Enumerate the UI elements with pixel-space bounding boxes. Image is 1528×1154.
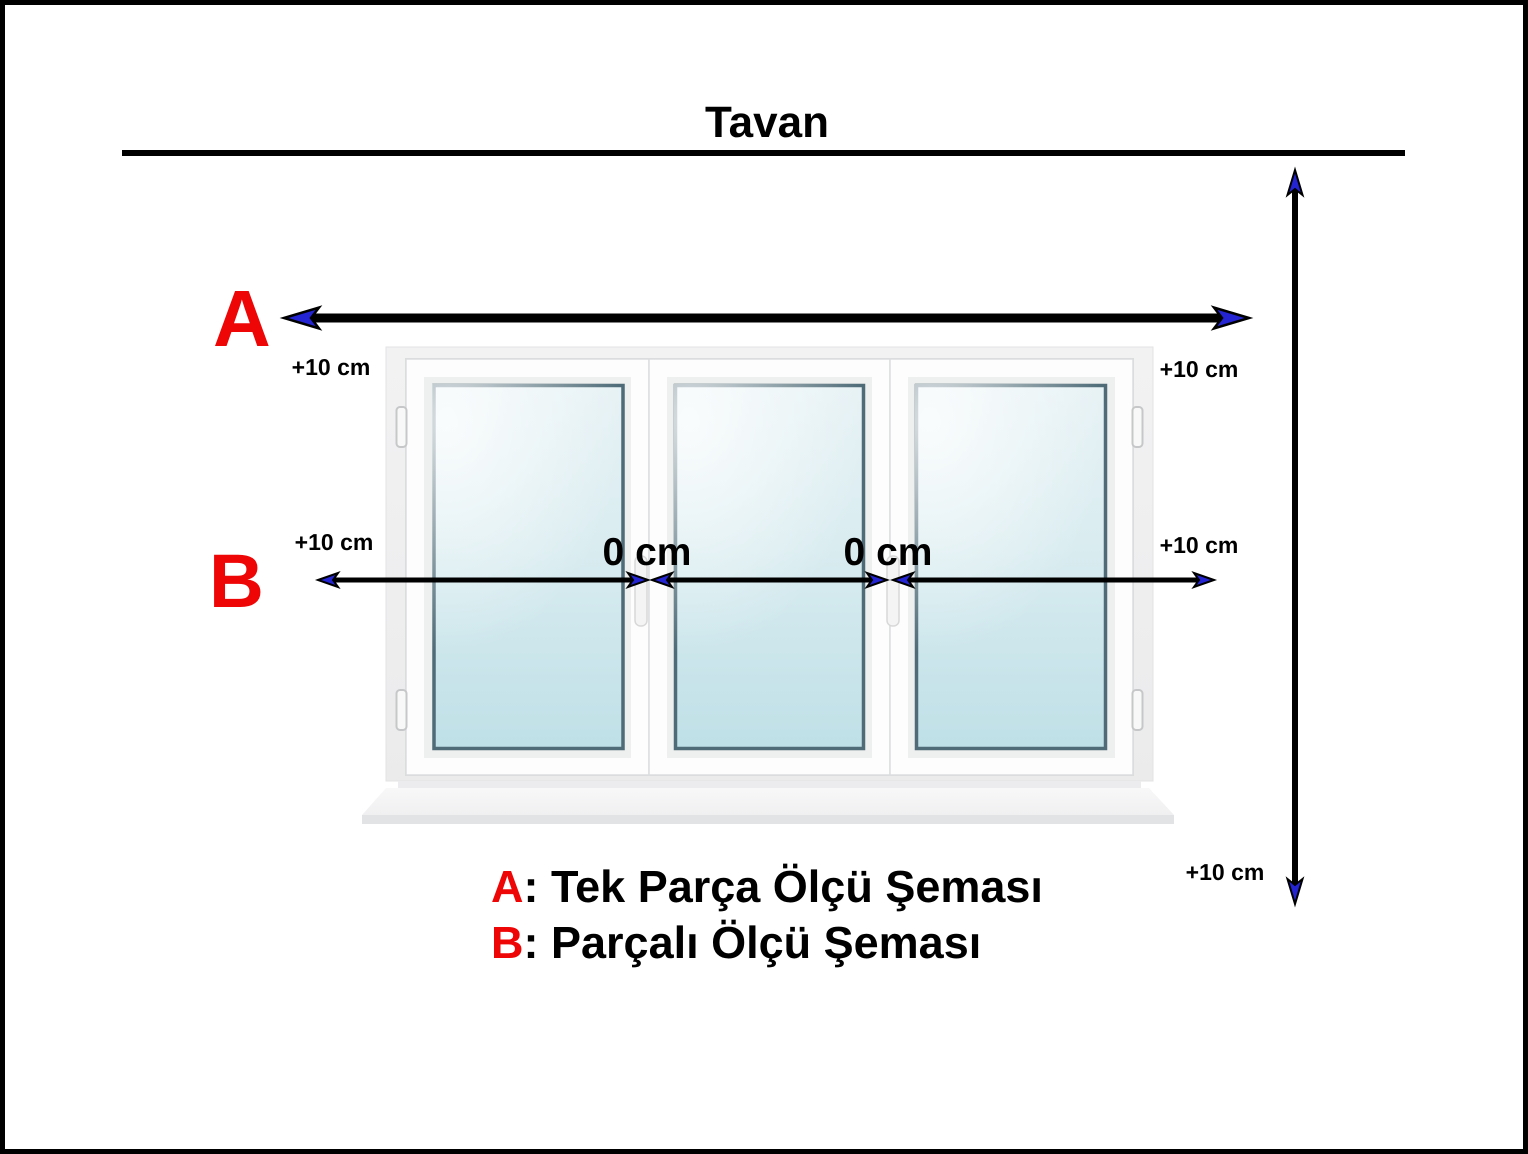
svg-text:+10 cm: +10 cm (1186, 859, 1265, 885)
svg-text:Tavan: Tavan (705, 98, 829, 147)
svg-text:0 cm: 0 cm (603, 531, 692, 574)
svg-text:+10 cm: +10 cm (1160, 532, 1239, 558)
svg-text:+10 cm: +10 cm (295, 529, 374, 555)
svg-text:+10 cm: +10 cm (292, 354, 371, 380)
svg-text:A: Tek Parça Ölçü Şeması: A: Tek Parça Ölçü Şeması (491, 861, 1043, 912)
svg-text:B: Parçalı Ölçü Şeması: B: Parçalı Ölçü Şeması (491, 917, 981, 968)
svg-text:+10 cm: +10 cm (1160, 356, 1239, 382)
svg-text:A: A (213, 274, 271, 363)
svg-text:0 cm: 0 cm (844, 531, 933, 574)
svg-text:B: B (209, 539, 264, 624)
